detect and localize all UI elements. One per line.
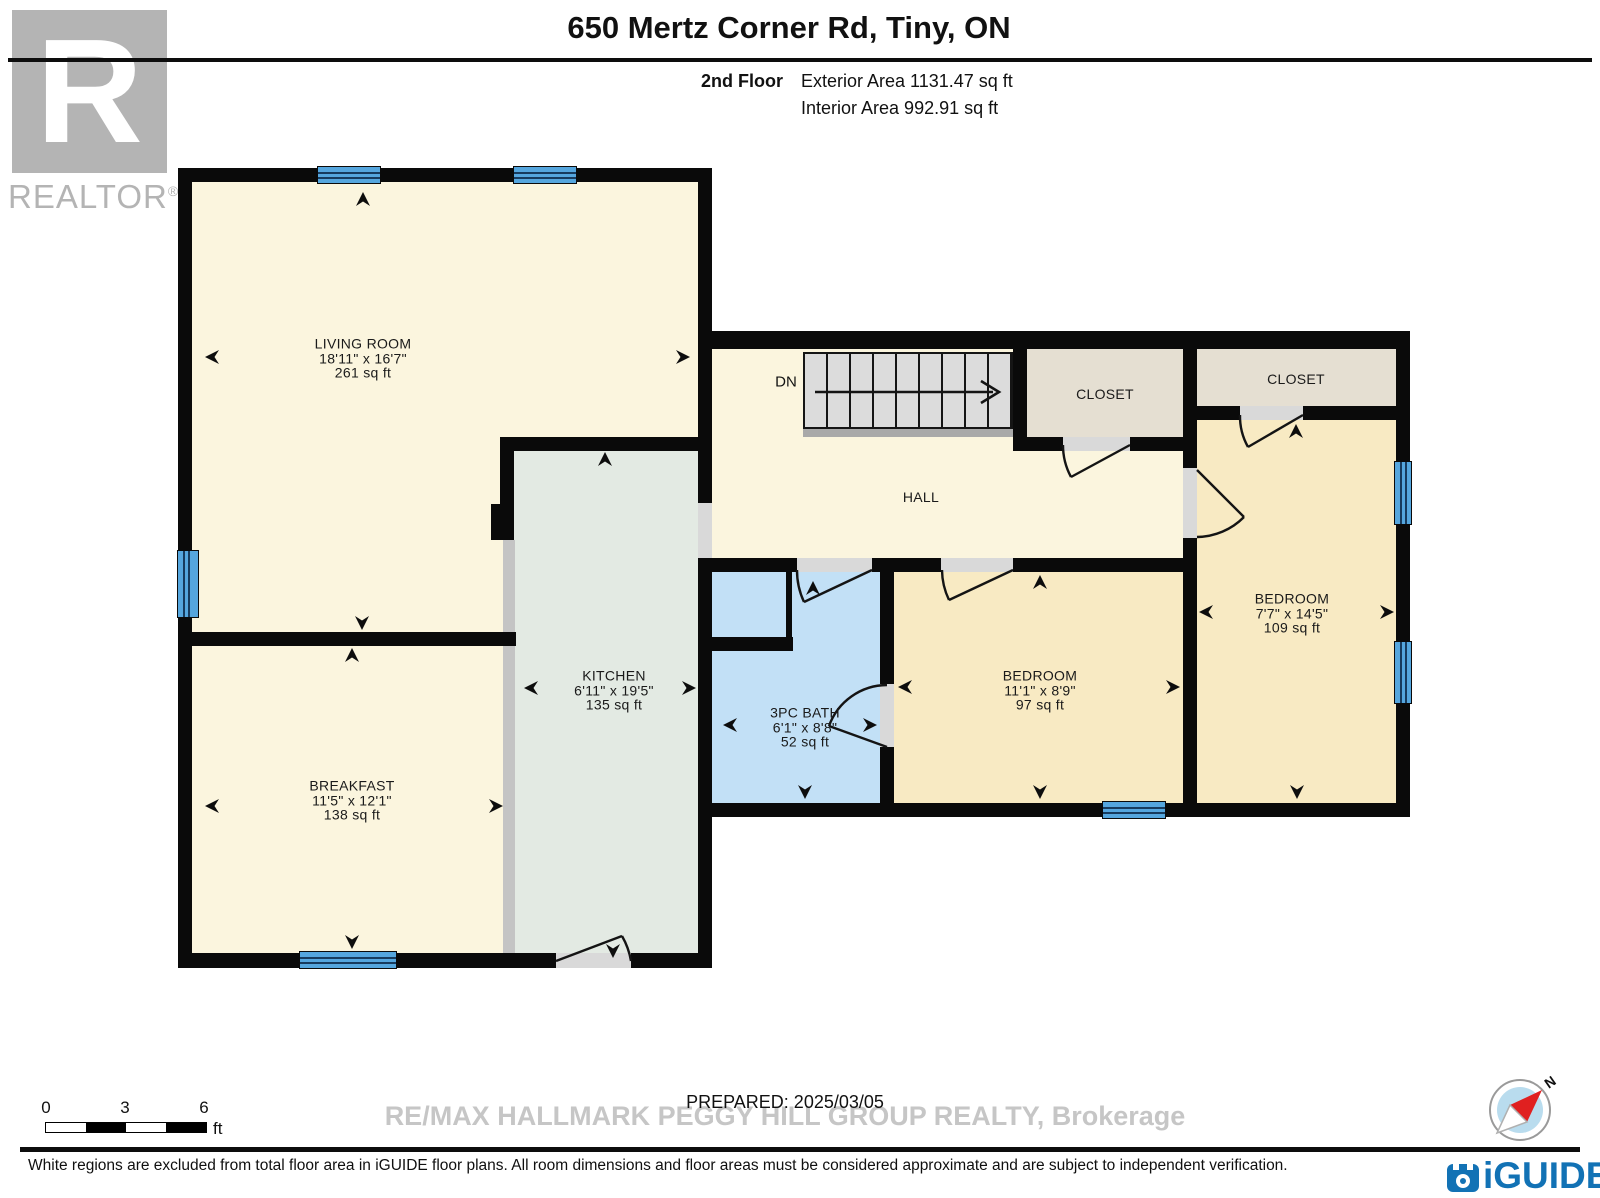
disclaimer-text: White regions are excluded from total fl…	[28, 1157, 1288, 1175]
header-divider	[8, 58, 1592, 62]
wall	[698, 803, 1410, 817]
window	[317, 166, 381, 184]
door-opening	[1240, 406, 1303, 420]
room-name: CLOSET	[1267, 372, 1325, 387]
window	[1394, 461, 1412, 525]
compass-north-label: N	[1541, 1073, 1558, 1092]
room-label-closet2: CLOSET	[1267, 372, 1325, 387]
scale-tick-0: 0	[41, 1098, 50, 1118]
room-area: 109 sq ft	[1255, 620, 1329, 635]
window	[299, 951, 397, 969]
wall	[178, 168, 712, 182]
door-opening	[556, 953, 631, 968]
room-dims: 7'7" x 14'5"	[1255, 606, 1329, 621]
floorplan-page: 650 Mertz Corner Rd, Tiny, ON 2nd Floor …	[0, 0, 1600, 1198]
stairs-down-label: DN	[775, 374, 797, 391]
wall	[1013, 331, 1027, 451]
wall	[178, 953, 712, 968]
room-name: BEDROOM	[1003, 668, 1077, 683]
room-area: 97 sq ft	[1003, 697, 1077, 712]
scale-tick-3: 3	[120, 1098, 129, 1118]
room-area: 138 sq ft	[309, 807, 394, 822]
wall	[500, 437, 712, 451]
half-wall	[503, 540, 515, 953]
room-label-closet1: CLOSET	[1076, 387, 1134, 402]
scale-unit: ft	[213, 1119, 222, 1139]
room-label-bath: 3PC BATH 6'1" x 8'8" 52 sq ft	[770, 705, 840, 749]
room-name: HALL	[903, 490, 939, 505]
room-label-bedroom-right: BEDROOM 7'7" x 14'5" 109 sq ft	[1255, 591, 1329, 635]
room-dims: 11'5" x 12'1"	[309, 793, 394, 808]
scale-tick-6: 6	[199, 1098, 208, 1118]
room-dims: 11'1" x 8'9"	[1003, 683, 1077, 698]
wall	[178, 632, 516, 646]
door-opening	[941, 558, 1013, 572]
scale-segment	[126, 1123, 166, 1132]
staircase-nosing	[803, 427, 1013, 437]
exterior-area: Exterior Area 1131.47 sq ft	[801, 71, 1013, 92]
window	[1394, 641, 1412, 704]
realtor-text: REALTOR	[8, 178, 168, 215]
room-name: LIVING ROOM	[315, 336, 412, 351]
door-opening	[1063, 437, 1130, 451]
door-opening	[797, 558, 872, 572]
room-area: 135 sq ft	[574, 697, 654, 712]
wall	[712, 637, 793, 651]
room-name: KITCHEN	[574, 668, 654, 683]
realtor-logo-icon: R	[12, 10, 167, 173]
door-opening	[1183, 468, 1197, 538]
window	[177, 550, 199, 618]
scale-segment	[166, 1123, 206, 1132]
room-name: CLOSET	[1076, 387, 1134, 402]
room-label-living: LIVING ROOM 18'11" x 16'7" 261 sq ft	[315, 336, 412, 380]
wall	[491, 504, 514, 540]
wall	[1183, 331, 1197, 817]
page-title: 650 Mertz Corner Rd, Tiny, ON	[567, 10, 1010, 46]
compass-icon	[1490, 1080, 1550, 1140]
room-name: BEDROOM	[1255, 591, 1329, 606]
window	[513, 166, 577, 184]
bath-area	[712, 572, 880, 803]
room-label-hall: HALL	[903, 490, 939, 505]
registered-mark: ®	[168, 183, 179, 199]
room-area: 261 sq ft	[315, 365, 412, 380]
room-label-kitchen: KITCHEN 6'11" x 19'5" 135 sq ft	[574, 668, 654, 712]
wall	[786, 572, 792, 640]
iguide-logo: iGUIDE	[1444, 1157, 1600, 1194]
room-dims: 18'11" x 16'7"	[315, 351, 412, 366]
realtor-logo-word: REALTOR®	[8, 178, 184, 216]
room-name: 3PC BATH	[770, 705, 840, 720]
scale-segment	[86, 1123, 126, 1132]
door-opening	[880, 684, 894, 747]
room-label-bedroom-mid: BEDROOM 11'1" x 8'9" 97 sq ft	[1003, 668, 1077, 712]
floor-label: 2nd Floor	[701, 71, 783, 92]
scale-bar	[45, 1122, 207, 1133]
room-area: 52 sq ft	[770, 734, 840, 749]
prepared-date: PREPARED: 2025/03/05	[686, 1092, 884, 1113]
room-name: BREAKFAST	[309, 778, 394, 793]
iguide-logo-text: iGUIDE	[1483, 1157, 1600, 1194]
scale-segment	[46, 1123, 86, 1132]
wall	[1396, 331, 1410, 817]
interior-area: Interior Area 992.91 sq ft	[801, 98, 998, 119]
wall-opening	[698, 503, 712, 558]
wall	[698, 331, 1410, 349]
footer-divider	[20, 1147, 1580, 1152]
realtor-logo-letter: R	[36, 18, 143, 166]
room-dims: 6'11" x 19'5"	[574, 683, 654, 698]
window	[1102, 801, 1166, 819]
room-label-breakfast: BREAKFAST 11'5" x 12'1" 138 sq ft	[309, 778, 394, 822]
staircase	[803, 352, 1013, 437]
room-dims: 6'1" x 8'8"	[770, 720, 840, 735]
